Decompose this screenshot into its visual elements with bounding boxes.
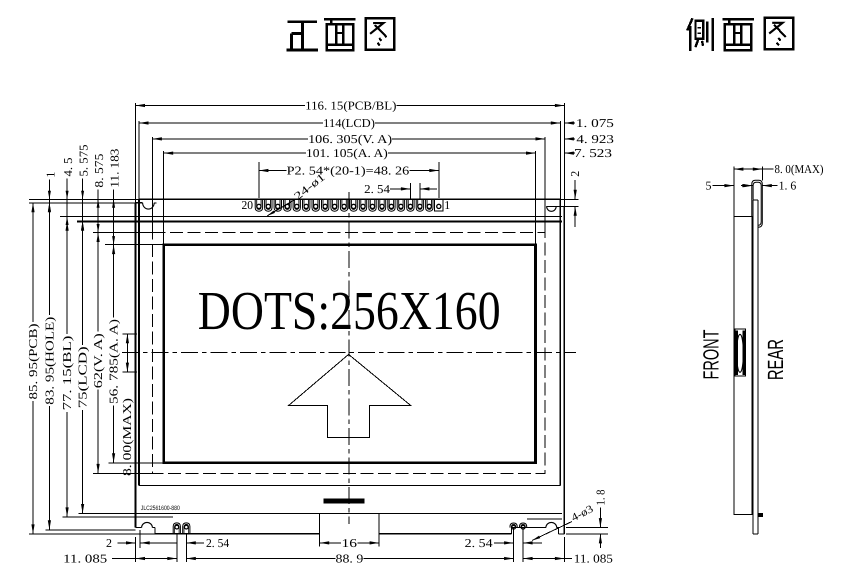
svg-text:101. 105(A. A): 101. 105(A. A) bbox=[306, 146, 388, 160]
svg-text:11. 085: 11. 085 bbox=[63, 551, 107, 565]
svg-text:5: 5 bbox=[706, 179, 712, 193]
svg-text:DOTS:256X160: DOTS:256X160 bbox=[198, 280, 501, 341]
svg-text:83. 95(HOLE): 83. 95(HOLE) bbox=[42, 317, 56, 405]
svg-text:JLC2561600-880: JLC2561600-880 bbox=[141, 505, 180, 512]
svg-text:2. 54: 2. 54 bbox=[465, 536, 493, 550]
svg-text:75(LCD): 75(LCD) bbox=[76, 346, 90, 408]
svg-text:1: 1 bbox=[43, 172, 57, 178]
svg-text:1. 8: 1. 8 bbox=[594, 490, 608, 506]
svg-text:2. 54: 2. 54 bbox=[364, 182, 390, 196]
svg-text:8. 00(MAX): 8. 00(MAX) bbox=[120, 398, 134, 476]
svg-text:85. 95(PCB): 85. 95(PCB) bbox=[26, 324, 40, 400]
svg-text:114(LCD): 114(LCD) bbox=[323, 116, 375, 130]
svg-text:8. 575: 8. 575 bbox=[92, 154, 106, 188]
svg-text:1. 075: 1. 075 bbox=[576, 116, 614, 130]
svg-text:11. 183: 11. 183 bbox=[108, 149, 122, 188]
svg-text:2: 2 bbox=[568, 171, 582, 177]
svg-text:4. 5: 4. 5 bbox=[61, 158, 75, 177]
svg-text:4. 923: 4. 923 bbox=[576, 132, 614, 146]
svg-text:88. 9: 88. 9 bbox=[336, 551, 364, 565]
svg-text:11. 085: 11. 085 bbox=[574, 551, 613, 565]
svg-text:FRONT: FRONT bbox=[699, 330, 724, 380]
svg-text:77. 15(BL): 77. 15(BL) bbox=[60, 336, 74, 411]
svg-text:5. 575: 5. 575 bbox=[77, 145, 91, 177]
svg-text:8. 0(MAX): 8. 0(MAX) bbox=[775, 162, 824, 176]
svg-text:20: 20 bbox=[242, 198, 254, 212]
svg-text:116. 15(PCB/BL): 116. 15(PCB/BL) bbox=[305, 99, 396, 113]
svg-text:106. 305(V. A): 106. 305(V. A) bbox=[308, 132, 392, 146]
svg-text:P2. 54*(20-1)=48. 26: P2. 54*(20-1)=48. 26 bbox=[287, 164, 410, 178]
svg-text:REAR: REAR bbox=[763, 339, 788, 380]
svg-text:1. 6: 1. 6 bbox=[779, 179, 797, 193]
svg-text:7. 523: 7. 523 bbox=[574, 146, 612, 160]
svg-text:16: 16 bbox=[342, 536, 358, 550]
svg-text:62(V. A): 62(V. A) bbox=[91, 333, 105, 388]
svg-text:2: 2 bbox=[106, 536, 112, 550]
svg-text:56. 785(A. A): 56. 785(A. A) bbox=[107, 319, 121, 404]
svg-text:1: 1 bbox=[444, 198, 450, 212]
svg-text:2. 54: 2. 54 bbox=[206, 536, 229, 550]
